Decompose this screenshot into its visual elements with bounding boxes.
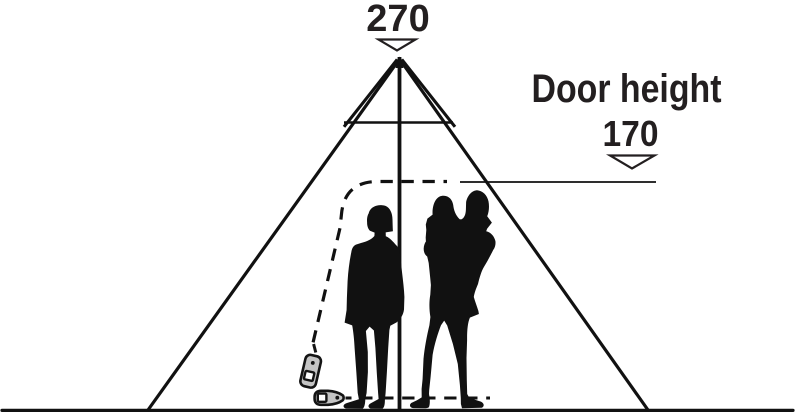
svg-text:Door height: Door height xyxy=(532,67,722,111)
svg-text:170: 170 xyxy=(603,113,659,154)
svg-text:270: 270 xyxy=(366,0,429,40)
